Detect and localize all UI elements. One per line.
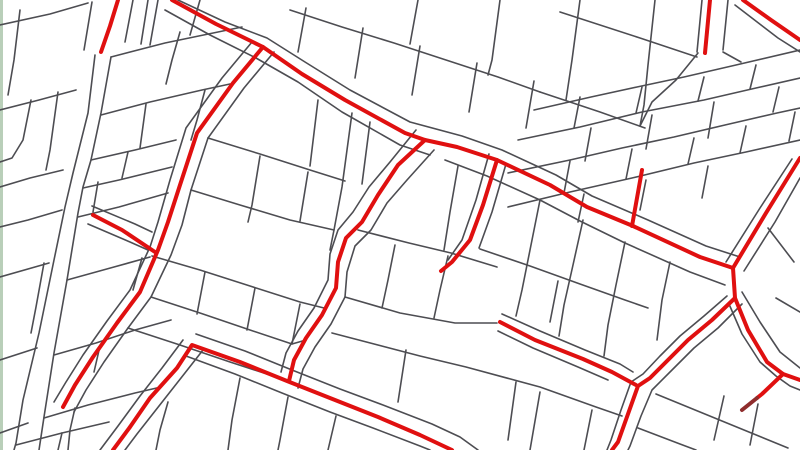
map-background bbox=[0, 0, 800, 450]
cadastral-map[interactable] bbox=[0, 0, 800, 450]
map-canvas[interactable] bbox=[0, 0, 800, 450]
